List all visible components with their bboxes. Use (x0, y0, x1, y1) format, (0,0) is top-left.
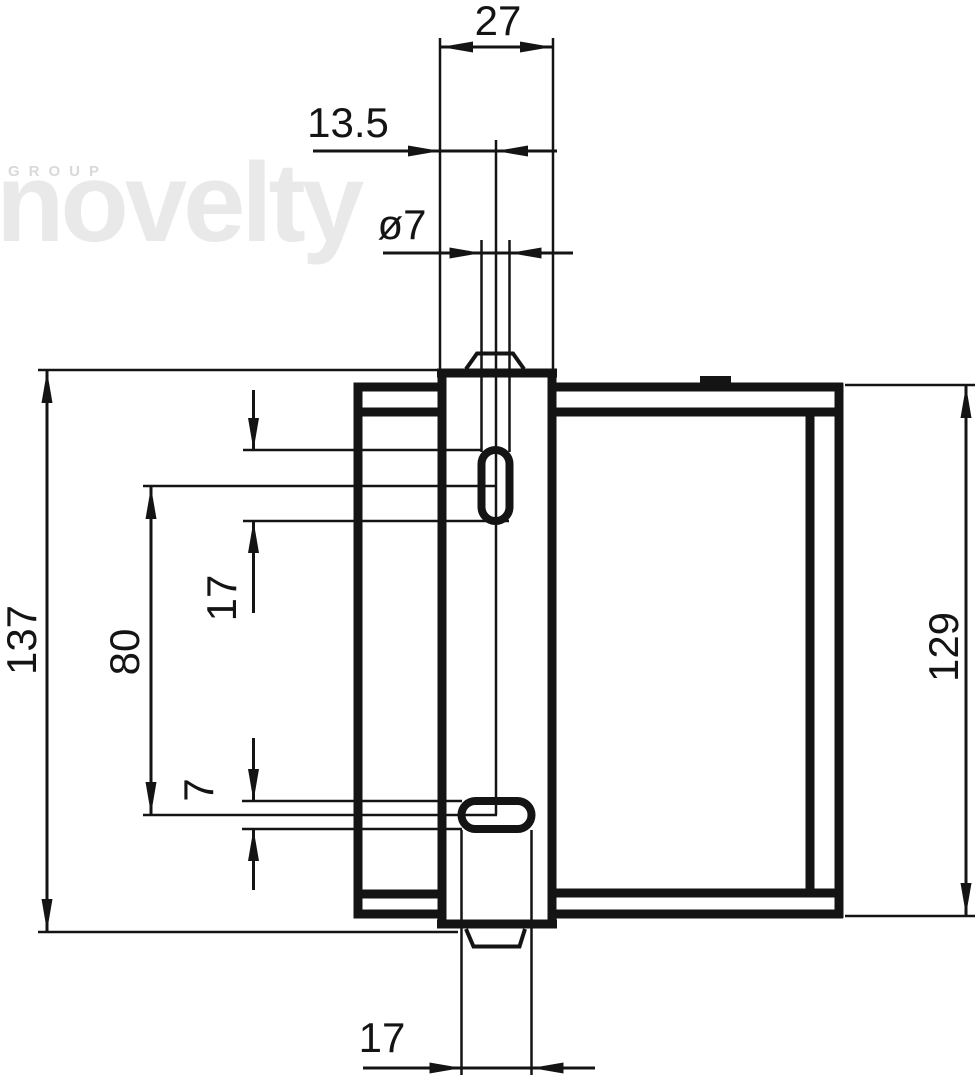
dim-upper-slot-17: 17 (198, 390, 259, 621)
dim-137-arrow-top (42, 371, 53, 403)
dim-17u-arrow-bottom (248, 521, 259, 553)
dim-7-arrow-top (248, 769, 259, 801)
bottom-tab-chamfer (466, 929, 525, 947)
dim-17b-label: 17 (359, 1014, 406, 1061)
dim-slot-spacing-80: 80 (101, 486, 157, 815)
dim-129-label: 129 (920, 612, 967, 682)
watermark: GROUP novelty (0, 140, 364, 265)
dim-27-arrow-left (441, 42, 473, 53)
dim-lower-slot-length-17: 17 (359, 1014, 595, 1074)
dim-80-label: 80 (101, 629, 148, 676)
dim-13-5-arrow-left (408, 146, 440, 157)
dim-17u-arrow-top (248, 418, 259, 450)
dim-frame-height-129: 129 (920, 385, 972, 916)
dim-137-label: 137 (0, 605, 45, 675)
dim-7-label: 7 (175, 778, 222, 801)
dim-13-5-label: 13.5 (307, 99, 389, 146)
dim-dia7-arrow-right (510, 248, 542, 259)
dim-overall-height-137: 137 (0, 370, 53, 932)
technical-drawing-canvas: GROUP novelty (0, 0, 977, 1080)
dim-17u-label: 17 (198, 575, 245, 622)
dim-dia7-arrow-left (450, 248, 482, 259)
dim-17b-arrow-right (532, 1063, 564, 1074)
dim-80-arrow-bottom (146, 782, 157, 814)
dim-hole-diameter-7: ø7 (377, 201, 573, 259)
dim-137-arrow-bottom (42, 899, 53, 931)
watermark-novelty-text: novelty (0, 140, 364, 265)
dim-27-label: 27 (475, 0, 522, 44)
dim-27-arrow-right (520, 42, 552, 53)
dim-7-arrow-bottom (248, 829, 259, 861)
dim-dia7-label: ø7 (377, 201, 426, 248)
dim-tab-width-27: 27 (440, 0, 553, 53)
left-plate-outline (358, 387, 442, 914)
frame-top-weld-mark (700, 376, 731, 387)
dim-129-arrow-bottom (961, 883, 972, 915)
part-outline (358, 354, 843, 947)
dim-80-arrow-top (146, 487, 157, 519)
dim-13-5-arrow-right (496, 146, 528, 157)
dim-17b-arrow-left (430, 1063, 462, 1074)
dim-129-arrow-top (961, 386, 972, 418)
